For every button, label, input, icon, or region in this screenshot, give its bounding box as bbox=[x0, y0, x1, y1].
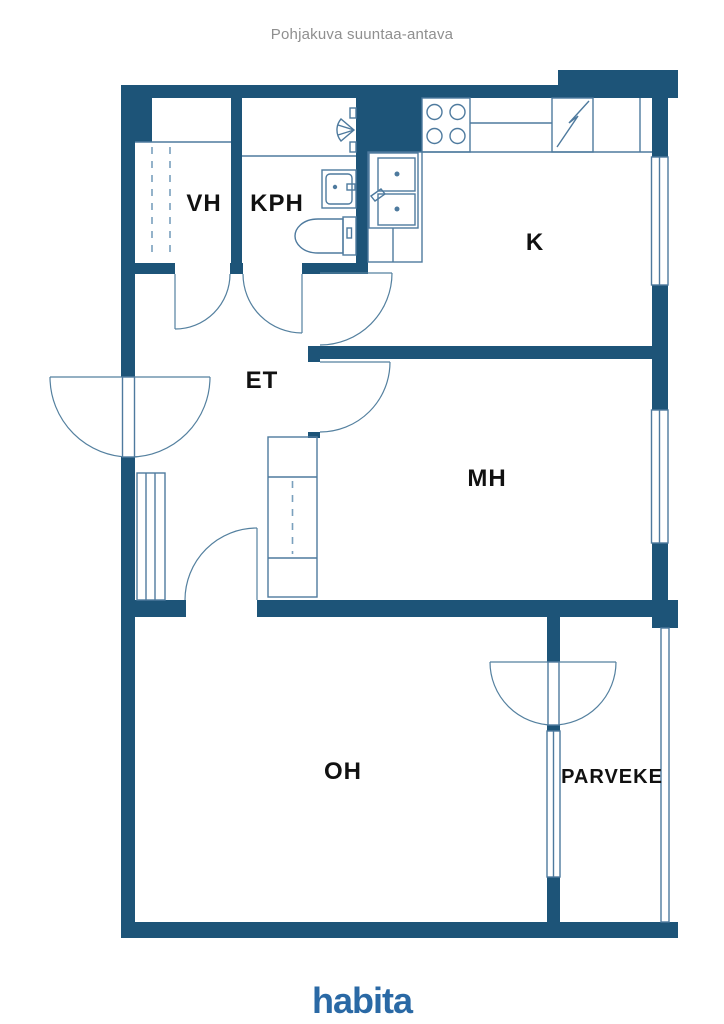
hall-closet bbox=[268, 437, 317, 597]
wall-right-mid bbox=[652, 285, 668, 410]
wall-top bbox=[121, 85, 558, 98]
window-balcony bbox=[547, 731, 560, 877]
wall-mh-oh bbox=[257, 600, 547, 617]
door-balcony bbox=[490, 662, 616, 725]
door-kitchen bbox=[320, 273, 392, 345]
door-bedroom bbox=[320, 362, 390, 432]
wall-corner-balcony bbox=[652, 600, 678, 628]
stove-icon bbox=[422, 98, 470, 152]
wall-top-right-raised bbox=[558, 70, 678, 98]
kitchen-sink-icon bbox=[368, 152, 422, 262]
room-label-parveke: PARVEKE bbox=[561, 766, 663, 788]
floorplan-page: Pohjakuva suuntaa-antava bbox=[0, 0, 724, 1024]
wall-block-kitchen bbox=[356, 85, 422, 152]
radiator bbox=[137, 473, 165, 600]
room-label-k: K bbox=[526, 229, 544, 256]
wall-k-mh bbox=[308, 346, 652, 359]
room-label-oh: OH bbox=[324, 758, 362, 785]
toilet-icon bbox=[295, 217, 356, 255]
door-vh bbox=[175, 274, 230, 329]
window-kitchen bbox=[652, 157, 669, 285]
wall-right-upper bbox=[652, 98, 668, 157]
door-kph bbox=[243, 274, 302, 333]
room-label-kph: KPH bbox=[250, 190, 304, 217]
door-entrance bbox=[50, 377, 210, 457]
wall-vh-kph bbox=[231, 98, 242, 263]
room-label-et: ET bbox=[246, 367, 279, 394]
wall-oh-parveke-upper bbox=[547, 600, 560, 662]
room-labels: VH KPH K ET MH OH PARVEKE bbox=[186, 190, 663, 788]
wall-et-top-b bbox=[230, 263, 243, 274]
windows bbox=[547, 157, 669, 922]
wall-oh-parveke-lower bbox=[547, 877, 560, 938]
shower-icon bbox=[337, 108, 356, 152]
wall-oh-parveke-stub bbox=[547, 725, 560, 731]
wall-et-k-stub-top bbox=[308, 263, 320, 273]
room-label-vh: VH bbox=[186, 190, 221, 217]
wall-bottom bbox=[121, 922, 678, 938]
wall-left-lower bbox=[121, 457, 135, 938]
window-bedroom bbox=[652, 410, 669, 543]
habita-logo: habita bbox=[0, 980, 724, 1022]
wall-left-upper bbox=[121, 85, 135, 377]
wall-balcony-top bbox=[560, 600, 652, 617]
floorplan-drawing: VH KPH K ET MH OH PARVEKE bbox=[0, 0, 724, 1024]
wall-et-top-a bbox=[135, 263, 175, 274]
wall-et-oh-left bbox=[121, 600, 186, 617]
bathroom-fixtures bbox=[242, 108, 356, 255]
fridge-icon bbox=[552, 98, 593, 152]
door-livingroom bbox=[185, 528, 257, 600]
room-label-mh: MH bbox=[467, 465, 506, 492]
bathroom-sink-icon bbox=[322, 170, 356, 208]
